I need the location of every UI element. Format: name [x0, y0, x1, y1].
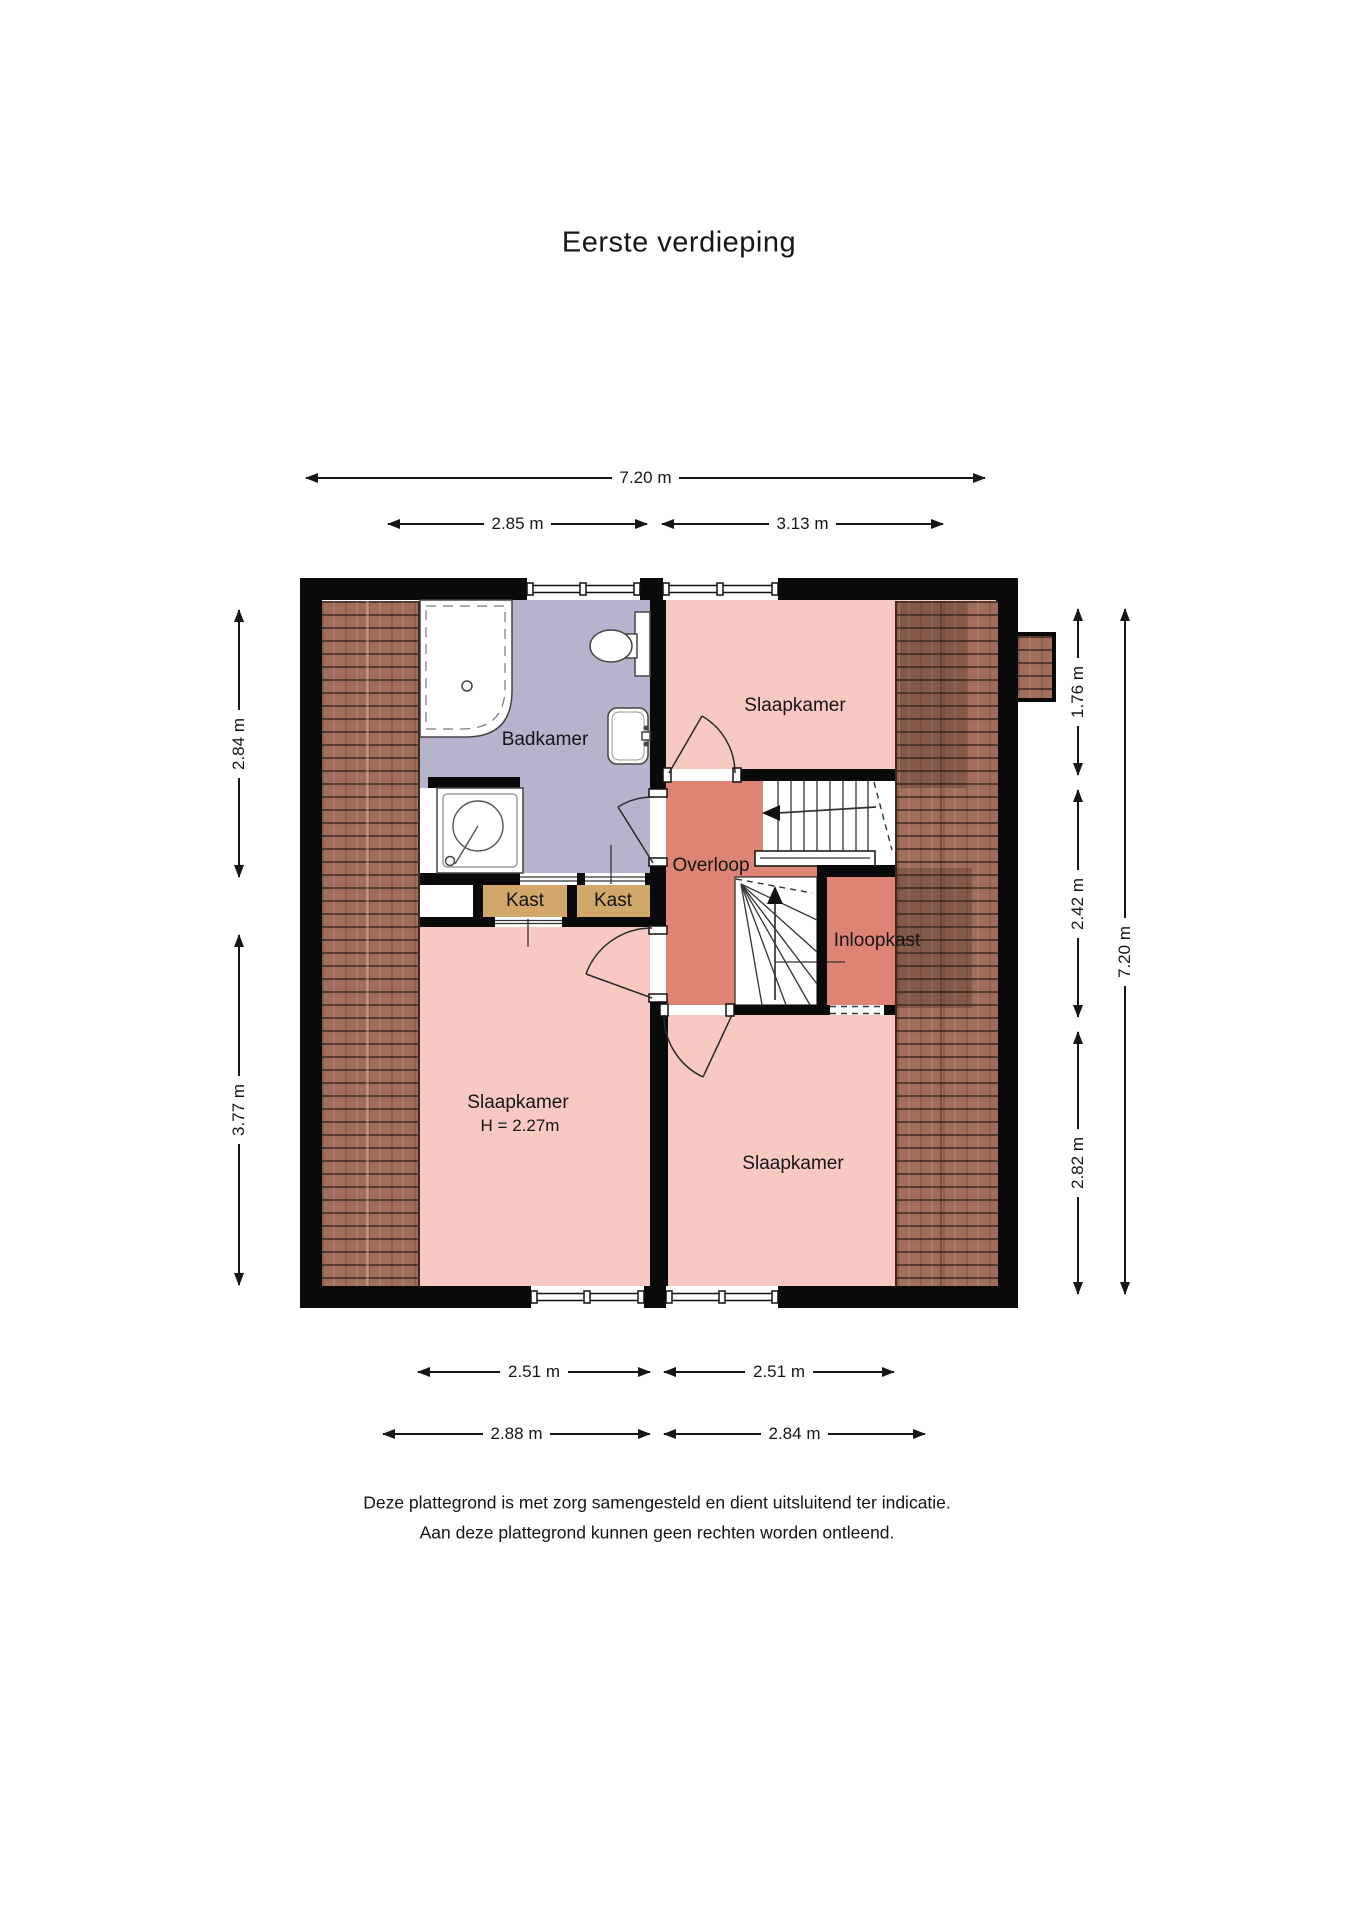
- dim-top-right: 3.13 m: [662, 523, 943, 525]
- dim-left-lower: 3.77 m: [238, 935, 240, 1285]
- dim-top-total: 7.20 m: [306, 477, 985, 479]
- dim-bottom-inner-right: 2.51 m: [664, 1371, 894, 1373]
- floorplan-page: Eerste verdieping: [0, 0, 1358, 1920]
- dim-bottom-outer-right: 2.84 m: [664, 1433, 925, 1435]
- roof-seam-left: [366, 601, 369, 1286]
- disclaimer-line-1: Deze plattegrond is met zorg samengestel…: [363, 1493, 951, 1514]
- dim-left-upper: 2.84 m: [238, 610, 240, 877]
- label-inloopkast: Inloopkast: [834, 930, 921, 952]
- label-kast-right: Kast: [594, 890, 632, 912]
- dim-bottom-outer-left: 2.88 m: [383, 1433, 650, 1435]
- dim-right-middle: 2.42 m: [1077, 790, 1079, 1017]
- label-slaapkamer-top: Slaapkamer: [744, 695, 845, 717]
- window-bottom-right: [666, 1286, 778, 1308]
- roof-seam-right: [940, 601, 942, 1286]
- label-slaapkamer-right: Slaapkamer: [742, 1153, 843, 1175]
- label-overloop: Overloop: [672, 855, 749, 877]
- disclaimer-line-2: Aan deze plattegrond kunnen geen rechten…: [420, 1523, 895, 1544]
- roof-tiles-left: [322, 601, 420, 1286]
- dim-right-total: 7.20 m: [1124, 609, 1126, 1294]
- roof-dormer-block: [1018, 632, 1056, 702]
- window-top-right: [663, 578, 778, 600]
- label-slaapkamer-left-height: H = 2.27m: [481, 1116, 560, 1136]
- sink-fixture: [608, 708, 650, 764]
- dim-right-lower: 2.82 m: [1077, 1032, 1079, 1294]
- dim-bottom-inner-left: 2.51 m: [418, 1371, 650, 1373]
- window-bottom-left: [531, 1286, 644, 1308]
- label-slaapkamer-left: Slaapkamer: [467, 1092, 568, 1114]
- dim-top-left: 2.85 m: [388, 523, 647, 525]
- dashed-wall: [830, 1005, 884, 1015]
- window-top-left: [527, 578, 640, 600]
- stairs-upper-flight: [755, 781, 895, 877]
- roof-shade-right-upper: [900, 601, 966, 788]
- shower-fixture: [437, 788, 523, 873]
- label-badkamer: Badkamer: [502, 729, 589, 751]
- label-kast-left: Kast: [506, 890, 544, 912]
- page-title: Eerste verdieping: [562, 227, 796, 260]
- bath-fixture: [420, 600, 512, 737]
- dim-right-upper: 1.76 m: [1077, 609, 1079, 775]
